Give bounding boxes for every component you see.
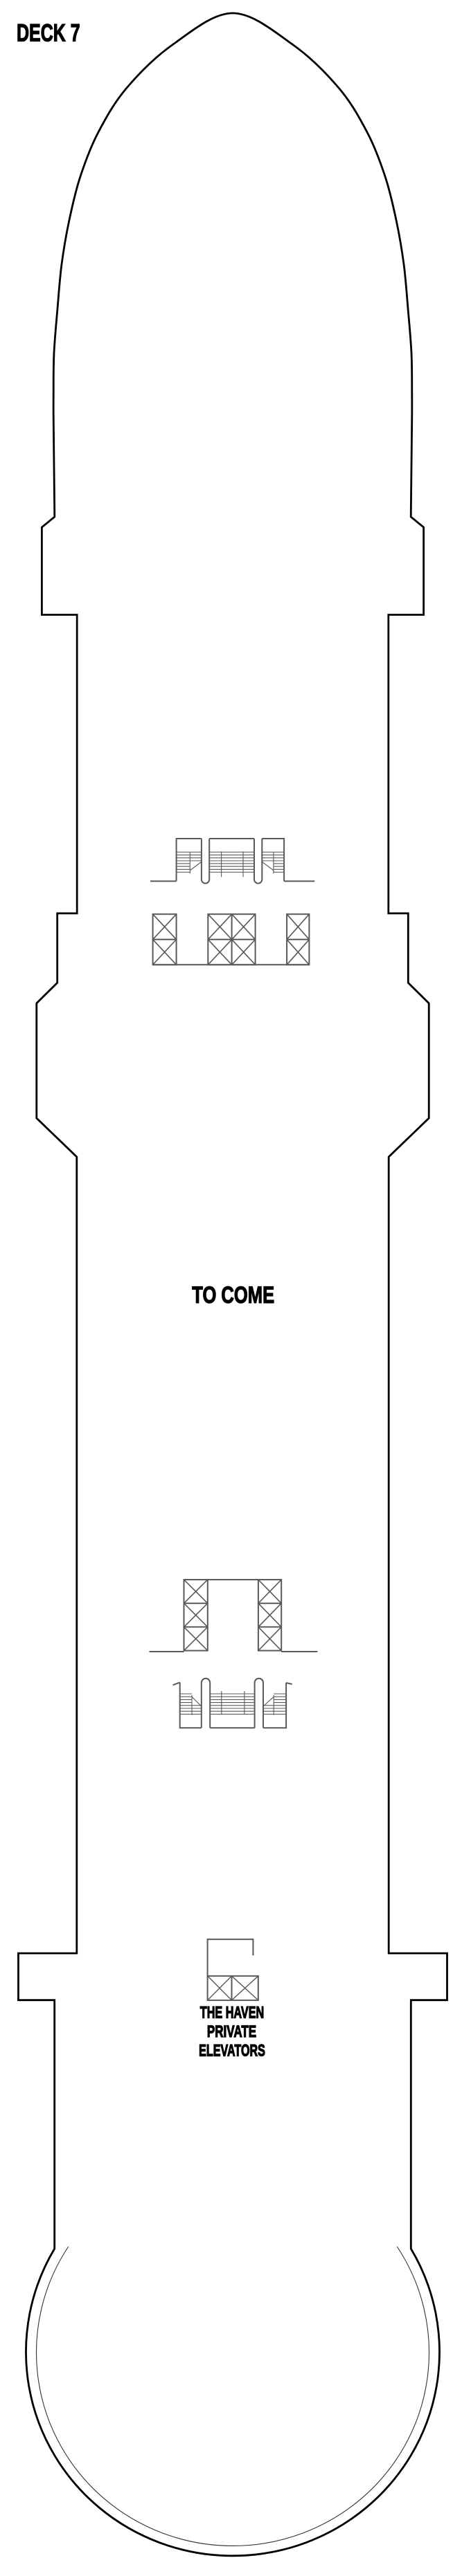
svg-text:TO COME: TO COME xyxy=(192,1282,274,1308)
svg-text:ELEVATORS: ELEVATORS xyxy=(199,2041,265,2060)
svg-text:PRIVATE: PRIVATE xyxy=(207,2022,256,2041)
svg-text:THE HAVEN: THE HAVEN xyxy=(200,2003,264,2022)
svg-text:DECK 7: DECK 7 xyxy=(17,19,80,46)
